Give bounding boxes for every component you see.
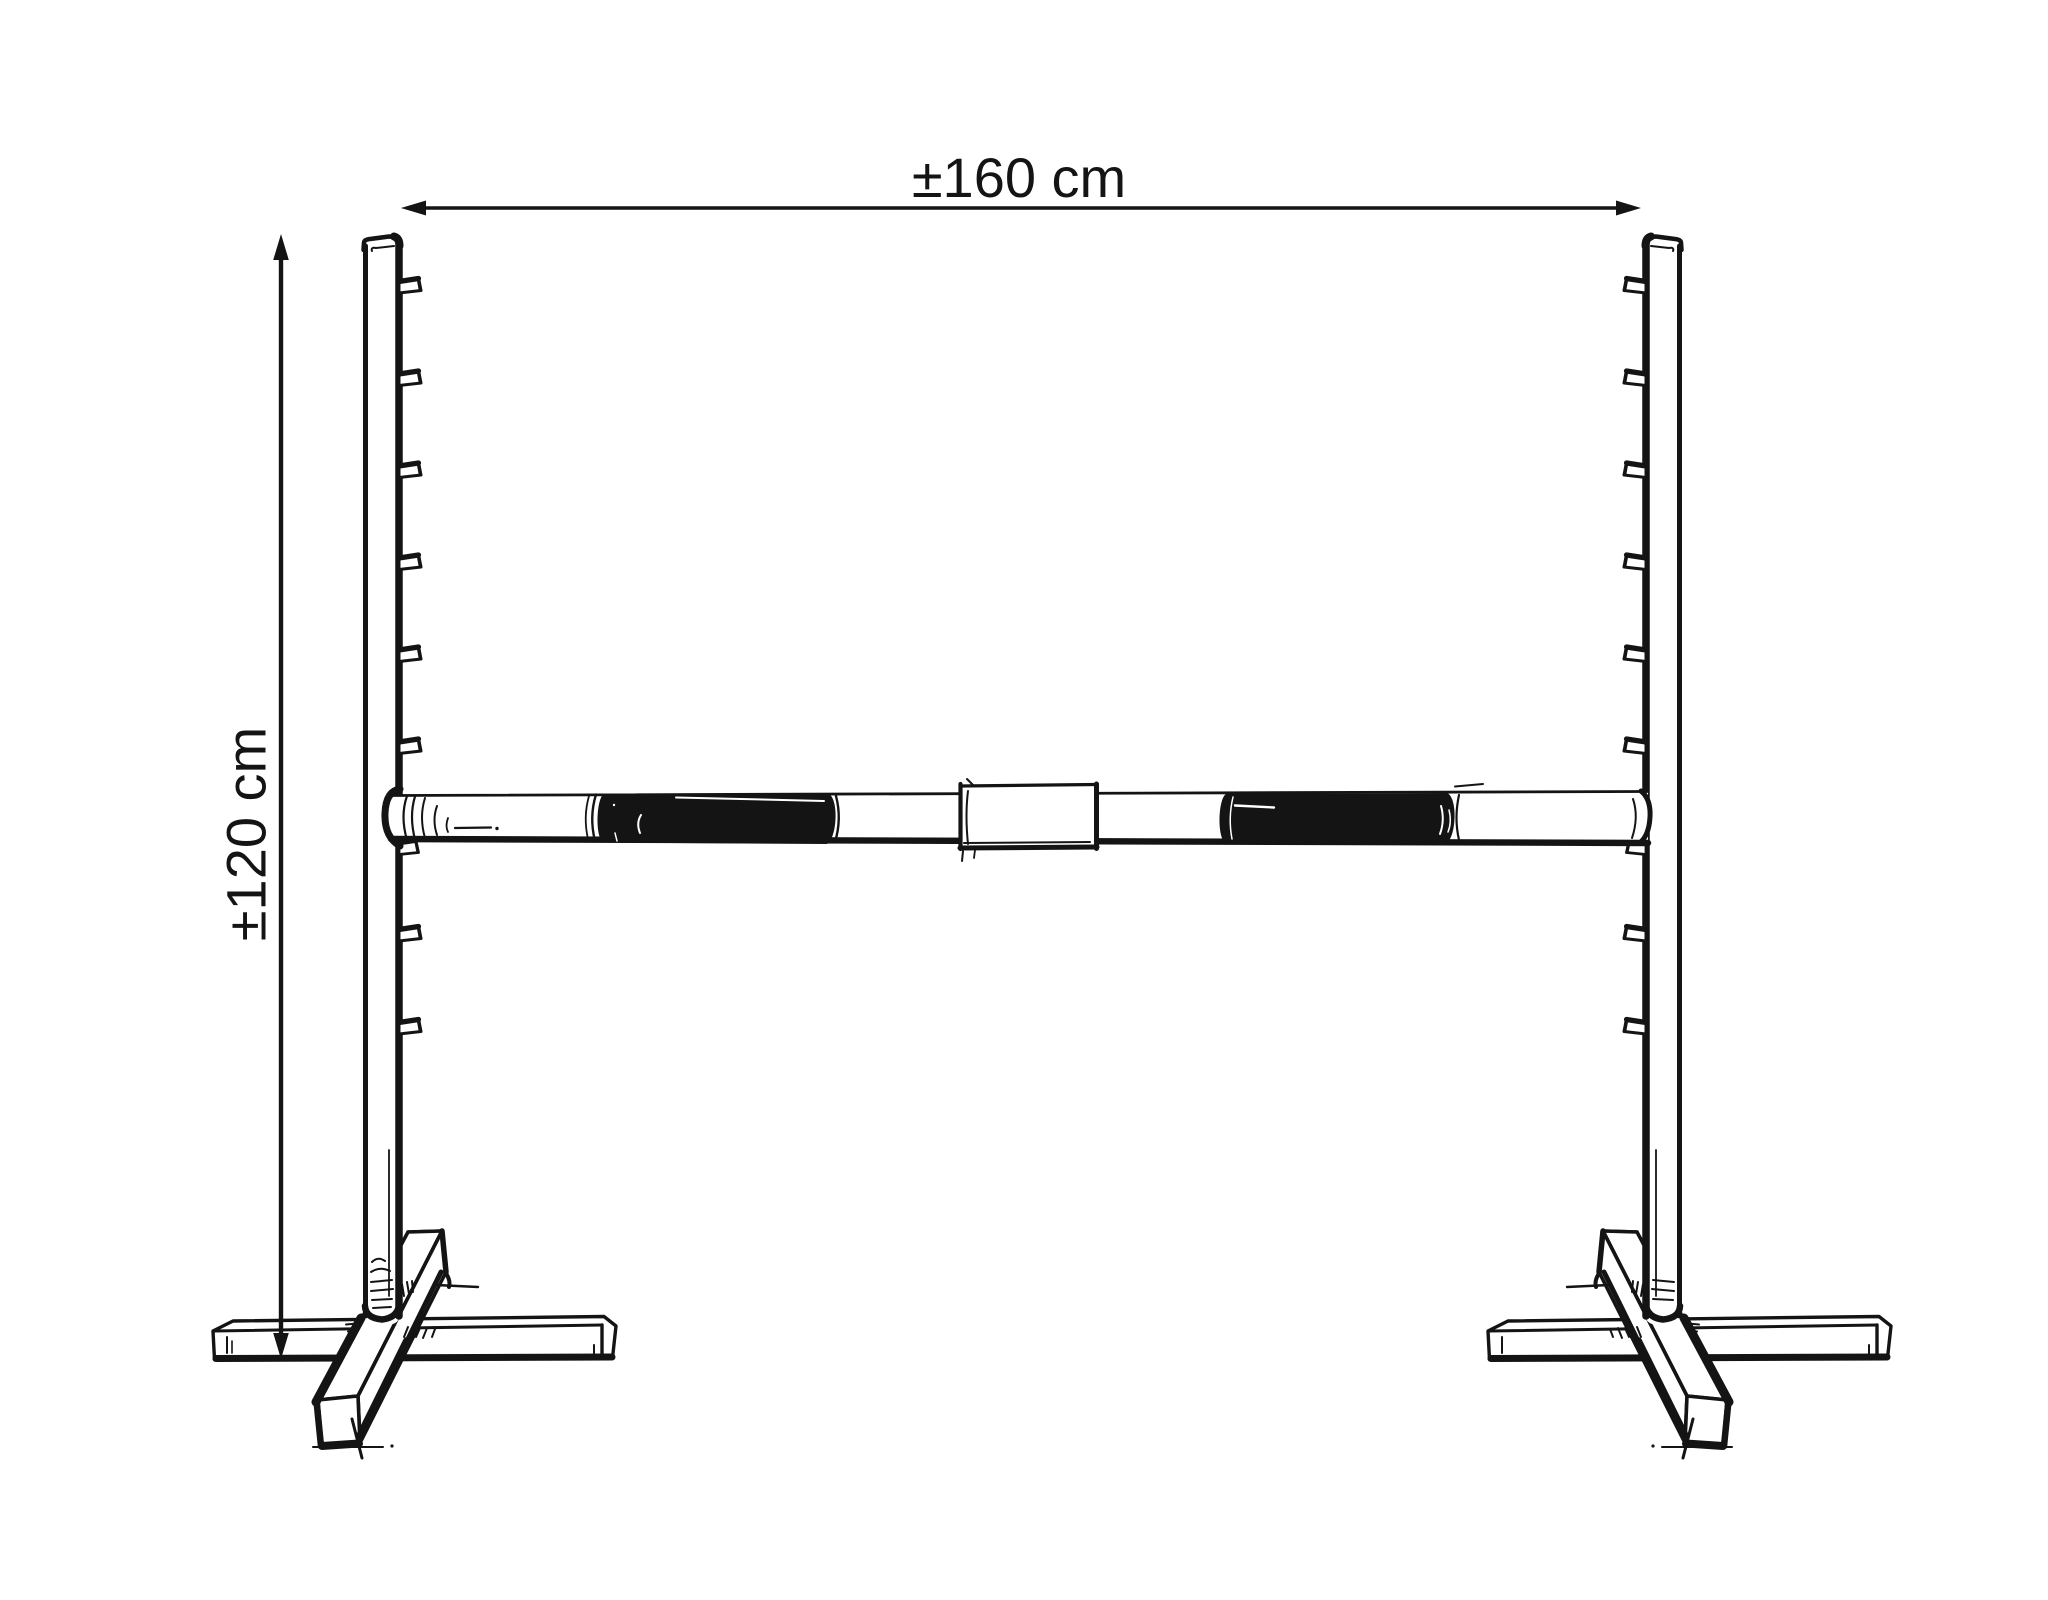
svg-text:±160 cm: ±160 cm <box>912 146 1126 209</box>
svg-text:±120 cm: ±120 cm <box>215 727 278 941</box>
